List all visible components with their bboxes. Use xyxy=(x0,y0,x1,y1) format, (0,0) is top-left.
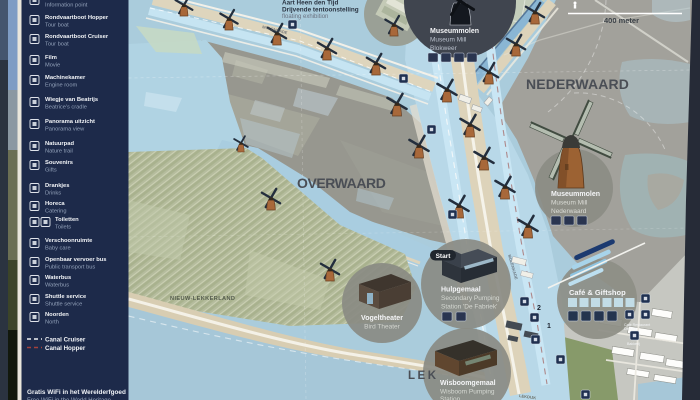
svg-text:Start: Start xyxy=(436,253,452,260)
svg-text:Catering: Catering xyxy=(45,209,67,215)
svg-text:Waterbus: Waterbus xyxy=(45,275,71,281)
svg-text:Machinekamer: Machinekamer xyxy=(45,75,86,81)
svg-text:Horeca: Horeca xyxy=(45,201,65,207)
svg-text:Rondvaartboot Cruiser: Rondvaartboot Cruiser xyxy=(45,34,109,40)
svg-text:Canal Hopper: Canal Hopper xyxy=(45,345,86,352)
svg-text:Station 'De Fabriek': Station 'De Fabriek' xyxy=(441,304,497,311)
svg-text:Museum Mill: Museum Mill xyxy=(430,37,467,44)
svg-text:Waterbus: Waterbus xyxy=(45,283,69,289)
svg-text:Nature trail: Nature trail xyxy=(45,149,73,155)
svg-text:Museummolen: Museummolen xyxy=(551,191,600,198)
svg-text:Natuurpad: Natuurpad xyxy=(45,141,74,147)
svg-text:Wisboomgemaal: Wisboomgemaal xyxy=(440,380,496,387)
svg-text:Hulpgemaal: Hulpgemaal xyxy=(441,287,481,294)
svg-text:Nederwaard: Nederwaard xyxy=(551,208,587,215)
svg-text:Information point: Information point xyxy=(45,3,88,9)
svg-text:Toiletten: Toiletten xyxy=(55,217,79,223)
svg-text:Verschoonruimte: Verschoonruimte xyxy=(45,238,93,244)
svg-text:400 meter: 400 meter xyxy=(604,16,639,25)
svg-text:NEDERWAARD: NEDERWAARD xyxy=(526,76,632,92)
svg-text:Wisboom Pumping: Wisboom Pumping xyxy=(440,389,495,396)
svg-text:Gratis WiFi in het Werelderfgo: Gratis WiFi in het Werelderfgoed xyxy=(27,389,126,396)
svg-text:Shuttle service: Shuttle service xyxy=(45,302,82,308)
svg-text:Shuttle service: Shuttle service xyxy=(45,294,87,300)
svg-text:Engine room: Engine room xyxy=(45,83,78,89)
svg-text:Secondary Pumping: Secondary Pumping xyxy=(441,295,500,302)
svg-text:Baby care: Baby care xyxy=(45,246,71,252)
svg-text:Wiegje van Beatrijs: Wiegje van Beatrijs xyxy=(45,97,98,103)
svg-text:De Klok: De Klok xyxy=(624,327,637,331)
svg-text:Movie: Movie xyxy=(45,63,60,69)
svg-text:Film: Film xyxy=(45,55,57,61)
svg-text:Bird Theater: Bird Theater xyxy=(364,324,400,331)
svg-text:floating exhibition: floating exhibition xyxy=(282,14,328,20)
svg-text:Toilets: Toilets xyxy=(55,225,71,231)
svg-text:Canal Cruiser: Canal Cruiser xyxy=(45,337,86,344)
svg-text:Drankjes: Drankjes xyxy=(45,183,70,189)
svg-text:Station: Station xyxy=(440,396,461,400)
svg-text:Museummolen: Museummolen xyxy=(430,28,479,35)
svg-text:Café & Giftshop: Café & Giftshop xyxy=(569,288,626,297)
svg-text:Noorden: Noorden xyxy=(45,312,69,318)
svg-text:North: North xyxy=(45,320,59,326)
svg-text:Public transport bus: Public transport bus xyxy=(45,265,95,271)
svg-text:Drijvende tentoonstelling: Drijvende tentoonstelling xyxy=(282,7,359,14)
svg-text:1: 1 xyxy=(547,323,551,330)
svg-text:Panorama view: Panorama view xyxy=(45,127,85,133)
svg-text:Tour boat: Tour boat xyxy=(45,42,69,48)
svg-text:Panorama uitzicht: Panorama uitzicht xyxy=(45,119,95,125)
svg-text:Beatrice's cradle: Beatrice's cradle xyxy=(45,105,87,111)
svg-text:Vogeltheater: Vogeltheater xyxy=(361,315,403,322)
svg-text:Blokweer: Blokweer xyxy=(430,45,458,52)
svg-text:Gifts: Gifts xyxy=(45,168,57,174)
svg-text:LEK: LEK xyxy=(408,370,439,382)
svg-text:Drinks: Drinks xyxy=(45,191,61,197)
svg-text:NIEUW-LEKKERLAND: NIEUW-LEKKERLAND xyxy=(170,296,235,302)
svg-text:2: 2 xyxy=(537,305,541,312)
svg-text:Souvenirs: Souvenirs xyxy=(45,160,73,166)
svg-text:Bakkerij: Bakkerij xyxy=(627,342,640,346)
svg-text:Museum Mill: Museum Mill xyxy=(551,200,588,207)
svg-text:Tour boat: Tour boat xyxy=(45,23,69,29)
svg-text:Openbaar vervoer bus: Openbaar vervoer bus xyxy=(45,257,107,263)
svg-text:OVERWAARD: OVERWAARD xyxy=(297,175,389,191)
svg-text:Rondvaartboot Hopper: Rondvaartboot Hopper xyxy=(45,15,109,21)
